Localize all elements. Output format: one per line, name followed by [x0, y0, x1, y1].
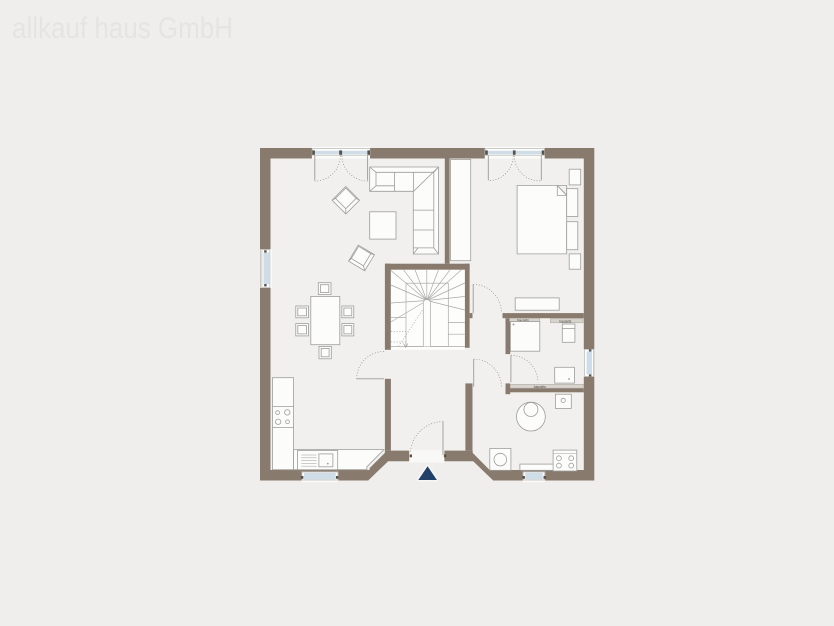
- svg-text:bauseits: bauseits: [534, 385, 546, 389]
- svg-text:allkauf haus GmbH: allkauf haus GmbH: [12, 12, 233, 45]
- svg-text:bauseits: bauseits: [560, 320, 572, 324]
